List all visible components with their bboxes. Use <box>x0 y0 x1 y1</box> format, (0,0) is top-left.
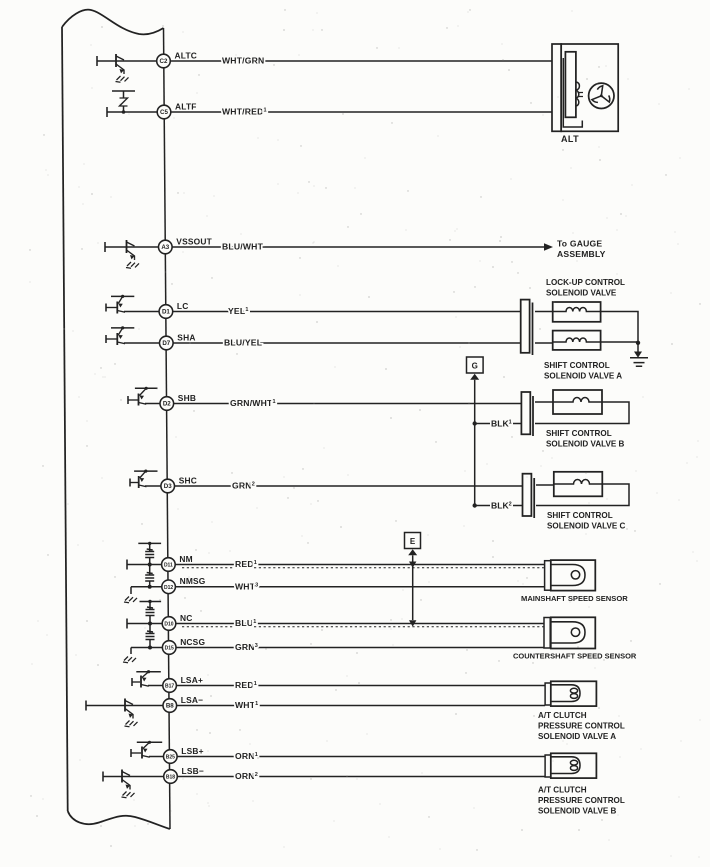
svg-text:D1: D1 <box>162 309 170 316</box>
svg-text:NC: NC <box>180 613 193 623</box>
svg-text:VSSOUT: VSSOUT <box>176 236 212 246</box>
svg-text:B25: B25 <box>166 755 175 761</box>
svg-text:ORN1: ORN1 <box>235 751 258 761</box>
svg-text:MAINSHAFT SPEED SENSOR: MAINSHAFT SPEED SENSOR <box>521 594 628 603</box>
svg-text:SOLENOID VALVE: SOLENOID VALVE <box>546 289 617 298</box>
svg-text:RED1: RED1 <box>235 680 257 690</box>
svg-text:SOLENOID VALVE A: SOLENOID VALVE A <box>544 372 622 381</box>
svg-text:SHA: SHA <box>177 332 195 342</box>
svg-text:SHIFT CONTROL: SHIFT CONTROL <box>547 511 613 520</box>
svg-text:BLU/WHT: BLU/WHT <box>222 242 264 252</box>
svg-text:LC: LC <box>177 301 189 311</box>
svg-text:LSA+: LSA+ <box>181 675 203 685</box>
svg-text:ALT: ALT <box>561 134 579 144</box>
svg-text:B18: B18 <box>166 775 175 781</box>
svg-text:NCSG: NCSG <box>180 637 205 647</box>
svg-text:BLK2: BLK2 <box>491 501 512 511</box>
svg-text:E: E <box>410 537 416 546</box>
svg-text:D2: D2 <box>163 401 171 408</box>
svg-text:ORN2: ORN2 <box>235 771 258 781</box>
svg-text:GRN2: GRN2 <box>232 481 255 491</box>
svg-text:NMSG: NMSG <box>180 576 206 586</box>
svg-text:LSA−: LSA− <box>181 695 203 705</box>
svg-text:PRESSURE CONTROL: PRESSURE CONTROL <box>538 722 625 731</box>
svg-text:LOCK-UP CONTROL: LOCK-UP CONTROL <box>546 278 625 287</box>
svg-text:PRESSURE CONTROL: PRESSURE CONTROL <box>538 796 625 805</box>
svg-text:D15: D15 <box>165 646 174 652</box>
svg-text:B8: B8 <box>166 703 174 710</box>
svg-text:LSB−: LSB− <box>182 766 204 776</box>
svg-text:GRN/WHT1: GRN/WHT1 <box>230 398 276 408</box>
svg-text:G: G <box>472 362 478 371</box>
svg-text:BLU/YEL: BLU/YEL <box>224 338 262 348</box>
svg-text:ALTF: ALTF <box>175 101 197 111</box>
svg-text:NM: NM <box>179 554 192 564</box>
svg-text:D10: D10 <box>164 622 173 628</box>
svg-text:C5: C5 <box>160 109 168 116</box>
svg-text:A/T CLUTCH: A/T CLUTCH <box>538 711 587 720</box>
svg-text:A3: A3 <box>161 244 169 251</box>
svg-text:D3: D3 <box>164 483 172 490</box>
svg-text:WHT/RED1: WHT/RED1 <box>222 107 267 117</box>
svg-text:B17: B17 <box>165 684 174 690</box>
svg-text:SOLENOID VALVE C: SOLENOID VALVE C <box>547 522 626 531</box>
svg-text:SHC: SHC <box>179 475 197 485</box>
svg-text:ALTC: ALTC <box>175 50 198 60</box>
svg-text:D7: D7 <box>162 340 170 347</box>
svg-text:SHB: SHB <box>178 393 196 403</box>
svg-text:SHIFT CONTROL: SHIFT CONTROL <box>544 361 610 370</box>
svg-text:A/T CLUTCH: A/T CLUTCH <box>538 786 587 795</box>
svg-text:D11: D11 <box>164 563 173 569</box>
svg-text:LSB+: LSB+ <box>181 746 203 756</box>
svg-text:ASSEMBLY: ASSEMBLY <box>557 249 606 259</box>
svg-text:SHIFT CONTROL: SHIFT CONTROL <box>546 429 612 438</box>
svg-text:To GAUGE: To GAUGE <box>557 239 602 249</box>
svg-text:SOLENOID VALVE A: SOLENOID VALVE A <box>538 732 616 741</box>
svg-text:GRN3: GRN3 <box>235 642 258 652</box>
svg-text:WHT1: WHT1 <box>235 700 258 710</box>
svg-text:RED1: RED1 <box>235 559 257 569</box>
svg-text:BLK1: BLK1 <box>491 419 512 429</box>
svg-text:C2: C2 <box>160 58 168 65</box>
svg-text:COUNTERSHAFT SPEED SENSOR: COUNTERSHAFT SPEED SENSOR <box>513 652 637 661</box>
svg-text:WHT/GRN: WHT/GRN <box>222 56 264 66</box>
svg-text:SOLENOID VALVE B: SOLENOID VALVE B <box>546 440 625 449</box>
svg-text:D12: D12 <box>164 585 173 591</box>
svg-text:SOLENOID VALVE B: SOLENOID VALVE B <box>538 807 617 816</box>
